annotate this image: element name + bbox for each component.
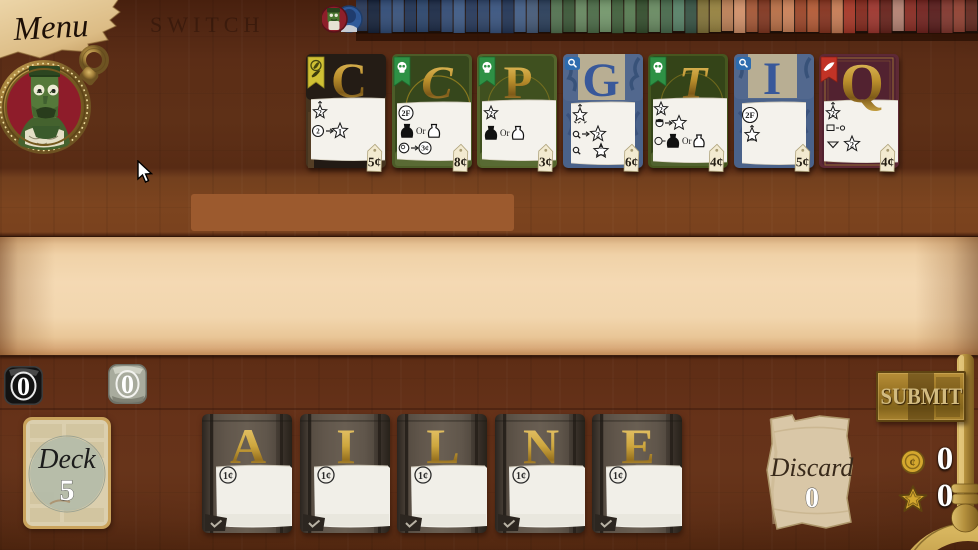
svg-text:Or: Or <box>416 126 426 136</box>
svg-text:2: 2 <box>318 109 322 117</box>
svg-text:2: 2 <box>489 110 493 118</box>
svg-text:Or: Or <box>500 128 510 138</box>
svg-text:5¢: 5¢ <box>795 154 809 169</box>
svg-text:2: 2 <box>659 106 663 114</box>
svg-text:3¢: 3¢ <box>421 144 429 153</box>
svg-text:Q: Q <box>840 54 884 115</box>
svg-text:Deck: Deck <box>37 444 96 475</box>
svg-text:1¢: 1¢ <box>516 471 526 482</box>
svg-text:0: 0 <box>121 370 134 399</box>
svg-text:2F: 2F <box>745 110 754 120</box>
svg-text:G: G <box>582 54 619 107</box>
svg-text:2: 2 <box>316 127 320 135</box>
svg-text:2: 2 <box>850 141 854 150</box>
svg-text:0: 0 <box>17 372 30 401</box>
svg-text:2: 2 <box>831 110 835 118</box>
svg-text:5¢: 5¢ <box>368 154 382 169</box>
svg-text:1¢: 1¢ <box>223 471 233 482</box>
svg-text:8¢: 8¢ <box>453 154 467 169</box>
svg-text:1¢: 1¢ <box>321 471 331 482</box>
svg-text:I: I <box>762 54 780 105</box>
svg-text:C: C <box>421 57 453 109</box>
svg-text:Menu: Menu <box>12 8 90 48</box>
svg-text:0: 0 <box>805 483 819 514</box>
svg-text:1¢: 1¢ <box>613 471 623 482</box>
svg-text:Discard: Discard <box>770 453 855 482</box>
svg-text:4¢: 4¢ <box>710 154 724 169</box>
svg-text:Or: Or <box>682 136 692 146</box>
svg-text:¢: ¢ <box>910 455 916 469</box>
svg-text:3¢: 3¢ <box>539 154 553 169</box>
svg-text:4¢: 4¢ <box>881 154 895 169</box>
svg-text:6¢: 6¢ <box>624 154 638 169</box>
svg-text:2F: 2F <box>401 109 410 118</box>
svg-text:1¢: 1¢ <box>418 471 428 482</box>
svg-text:1: 1 <box>338 128 342 137</box>
svg-text:2: 2 <box>596 131 600 140</box>
svg-text:5: 5 <box>60 474 75 507</box>
